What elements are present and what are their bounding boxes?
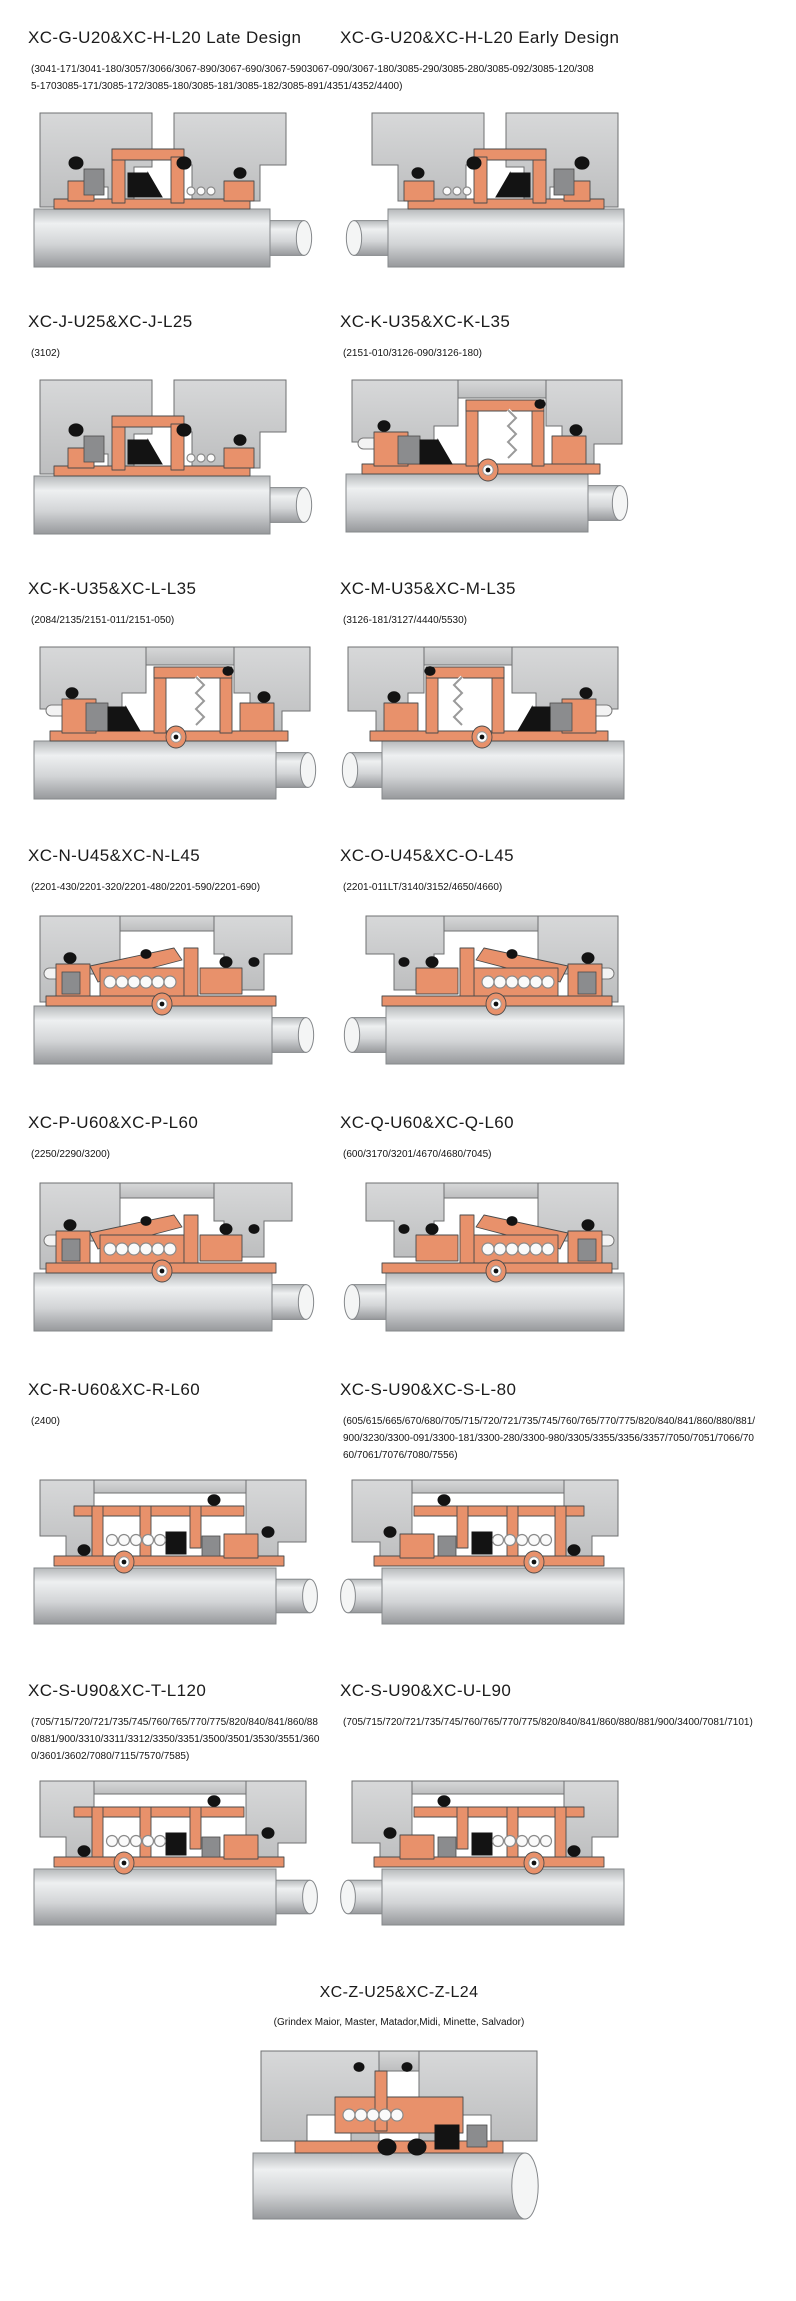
seal-model-title: XC-S-U90&XC-T-L120 (28, 1681, 340, 1701)
catalog-row-8: XC-Z-U25&XC-Z-L24 (Grindex Maior, Master… (28, 1984, 770, 2271)
seal-model-title: XC-G-U20&XC-H-L20 Late Design (28, 28, 340, 48)
seal-model-title: XC-Q-U60&XC-Q-L60 (340, 1113, 770, 1133)
part-numbers: (605/615/665/670/680/705/715/720/721/735… (340, 1413, 770, 1464)
part-numbers: (705/715/720/721/735/745/760/765/770/775… (28, 1714, 340, 1765)
seal-cross-section-diagram (340, 374, 770, 559)
part-numbers: (705/715/720/721/735/745/760/765/770/775… (340, 1714, 770, 1731)
seal-model-title: XC-R-U60&XC-R-L60 (28, 1380, 340, 1400)
seal-cross-section-diagram (28, 1777, 340, 1962)
seal-model-title: XC-S-U90&XC-S-L-80 (340, 1380, 770, 1400)
part-numbers: (3126-181/3127/4440/5530) (340, 612, 770, 629)
seal-model-title: XC-S-U90&XC-U-L90 (340, 1681, 770, 1701)
part-numbers: (2201-011LT/3140/3152/4650/4660) (340, 879, 770, 896)
seal-cross-section-diagram (28, 2041, 770, 2271)
seal-cross-section-diagram (340, 1175, 770, 1360)
seal-cross-section-diagram (340, 908, 770, 1093)
seal-cross-section-diagram (28, 1476, 340, 1661)
seal-model-title: XC-K-U35&XC-L-L35 (28, 579, 340, 599)
seal-model-title: XC-G-U20&XC-H-L20 Early Design (340, 28, 770, 48)
seal-cross-section-diagram (340, 1476, 770, 1661)
catalog-row-3: XC-K-U35&XC-L-L35 XC-M-U35&XC-M-L35 (208… (28, 559, 770, 826)
catalog-row-7: XC-S-U90&XC-T-L120 XC-S-U90&XC-U-L90 (70… (28, 1661, 770, 1962)
part-numbers: (2400) (28, 1413, 340, 1430)
seal-model-title: XC-Z-U25&XC-Z-L24 (28, 1984, 770, 2002)
catalog-row-5: XC-P-U60&XC-P-L60 XC-Q-U60&XC-Q-L60 (225… (28, 1093, 770, 1360)
seal-cross-section-diagram (28, 1175, 340, 1360)
seal-model-title: XC-J-U25&XC-J-L25 (28, 312, 340, 332)
seal-cross-section-diagram (28, 908, 340, 1093)
seal-model-title: XC-K-U35&XC-K-L35 (340, 312, 770, 332)
catalog-row-4: XC-N-U45&XC-N-L45 XC-O-U45&XC-O-L45 (220… (28, 826, 770, 1093)
seal-model-title: XC-P-U60&XC-P-L60 (28, 1113, 340, 1133)
part-numbers: (2201-430/2201-320/2201-480/2201-590/220… (28, 879, 340, 896)
part-numbers: (3102) (28, 345, 340, 362)
catalog-row-6: XC-R-U60&XC-R-L60 XC-S-U90&XC-S-L-80 (24… (28, 1360, 770, 1661)
seal-cross-section-diagram (340, 1777, 770, 1962)
catalog-row-1: XC-G-U20&XC-H-L20 Late Design XC-G-U20&X… (28, 8, 770, 292)
seal-model-title: XC-O-U45&XC-O-L45 (340, 846, 770, 866)
part-numbers: (600/3170/3201/4670/4680/7045) (340, 1146, 770, 1163)
seal-cross-section-diagram (28, 374, 340, 559)
part-numbers: (2084/2135/2151-011/2151-050) (28, 612, 340, 629)
part-numbers: (2151-010/3126-090/3126-180) (340, 345, 770, 362)
part-numbers: (Grindex Maior, Master, Matador,Midi, Mi… (28, 2014, 770, 2031)
seal-model-title: XC-N-U45&XC-N-L45 (28, 846, 340, 866)
seal-model-title: XC-M-U35&XC-M-L35 (340, 579, 770, 599)
seal-cross-section-diagram (340, 107, 770, 292)
seal-cross-section-diagram (340, 641, 770, 826)
seal-cross-section-diagram (28, 641, 340, 826)
part-numbers: (3041-171/3041-180/3057/3066/3067-890/30… (28, 61, 610, 95)
catalog-row-2: XC-J-U25&XC-J-L25 XC-K-U35&XC-K-L35 (310… (28, 292, 770, 559)
seal-cross-section-diagram (28, 107, 340, 292)
part-numbers: (2250/2290/3200) (28, 1146, 340, 1163)
